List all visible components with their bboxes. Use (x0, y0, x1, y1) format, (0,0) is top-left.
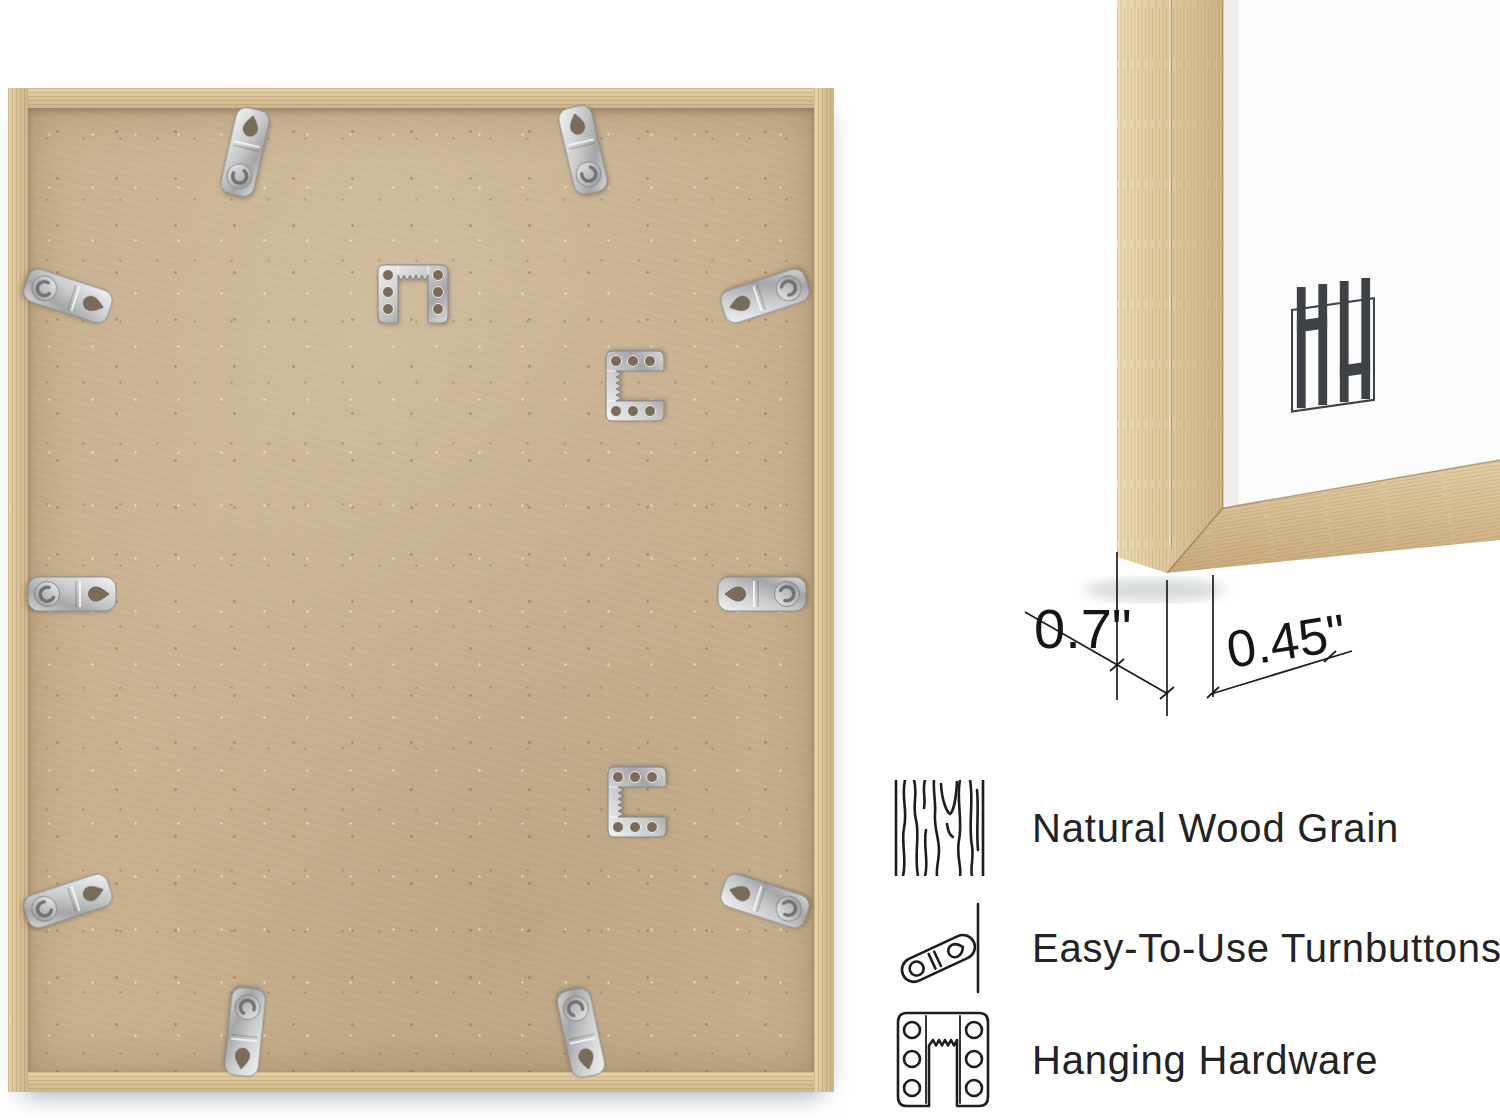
turnbutton-hardware (716, 574, 808, 614)
turnbutton-hardware (26, 574, 118, 614)
dimension-label-width: 0.45" (1223, 603, 1350, 679)
feature-label: Natural Wood Grain (1032, 806, 1399, 851)
hanging-hardware-icon (893, 1008, 993, 1108)
product-image: 0.7" 0.45" Natural Wood Grain Easy-To-Us… (0, 0, 1500, 1120)
frame-corner-photo: 0.7" 0.45" (1000, 0, 1500, 740)
turnbutton-icon (890, 902, 986, 994)
frame-wood-edge-top (8, 88, 834, 108)
dimension-label-depth: 0.7" (1034, 597, 1132, 660)
mat-shadow (1223, 0, 1239, 505)
feature-label: Easy-To-Use Turnbuttons (1032, 926, 1500, 971)
feature-label: Hanging Hardware (1032, 1038, 1378, 1083)
frame-wood-edge-right (814, 88, 834, 1092)
frame-mat (1223, 0, 1500, 508)
frame-wood-edge-bottom (8, 1072, 834, 1092)
frame-wood-edge-left (8, 88, 28, 1092)
sawtooth-hanger-hardware (374, 261, 452, 323)
wood-grain-icon (892, 780, 988, 876)
mdf-backing-board (28, 108, 814, 1072)
hh-brand-logo (1291, 276, 1375, 426)
sawtooth-hanger-hardware (602, 347, 664, 425)
frame-back-photo (8, 88, 834, 1092)
sawtooth-hanger-hardware (604, 763, 666, 841)
